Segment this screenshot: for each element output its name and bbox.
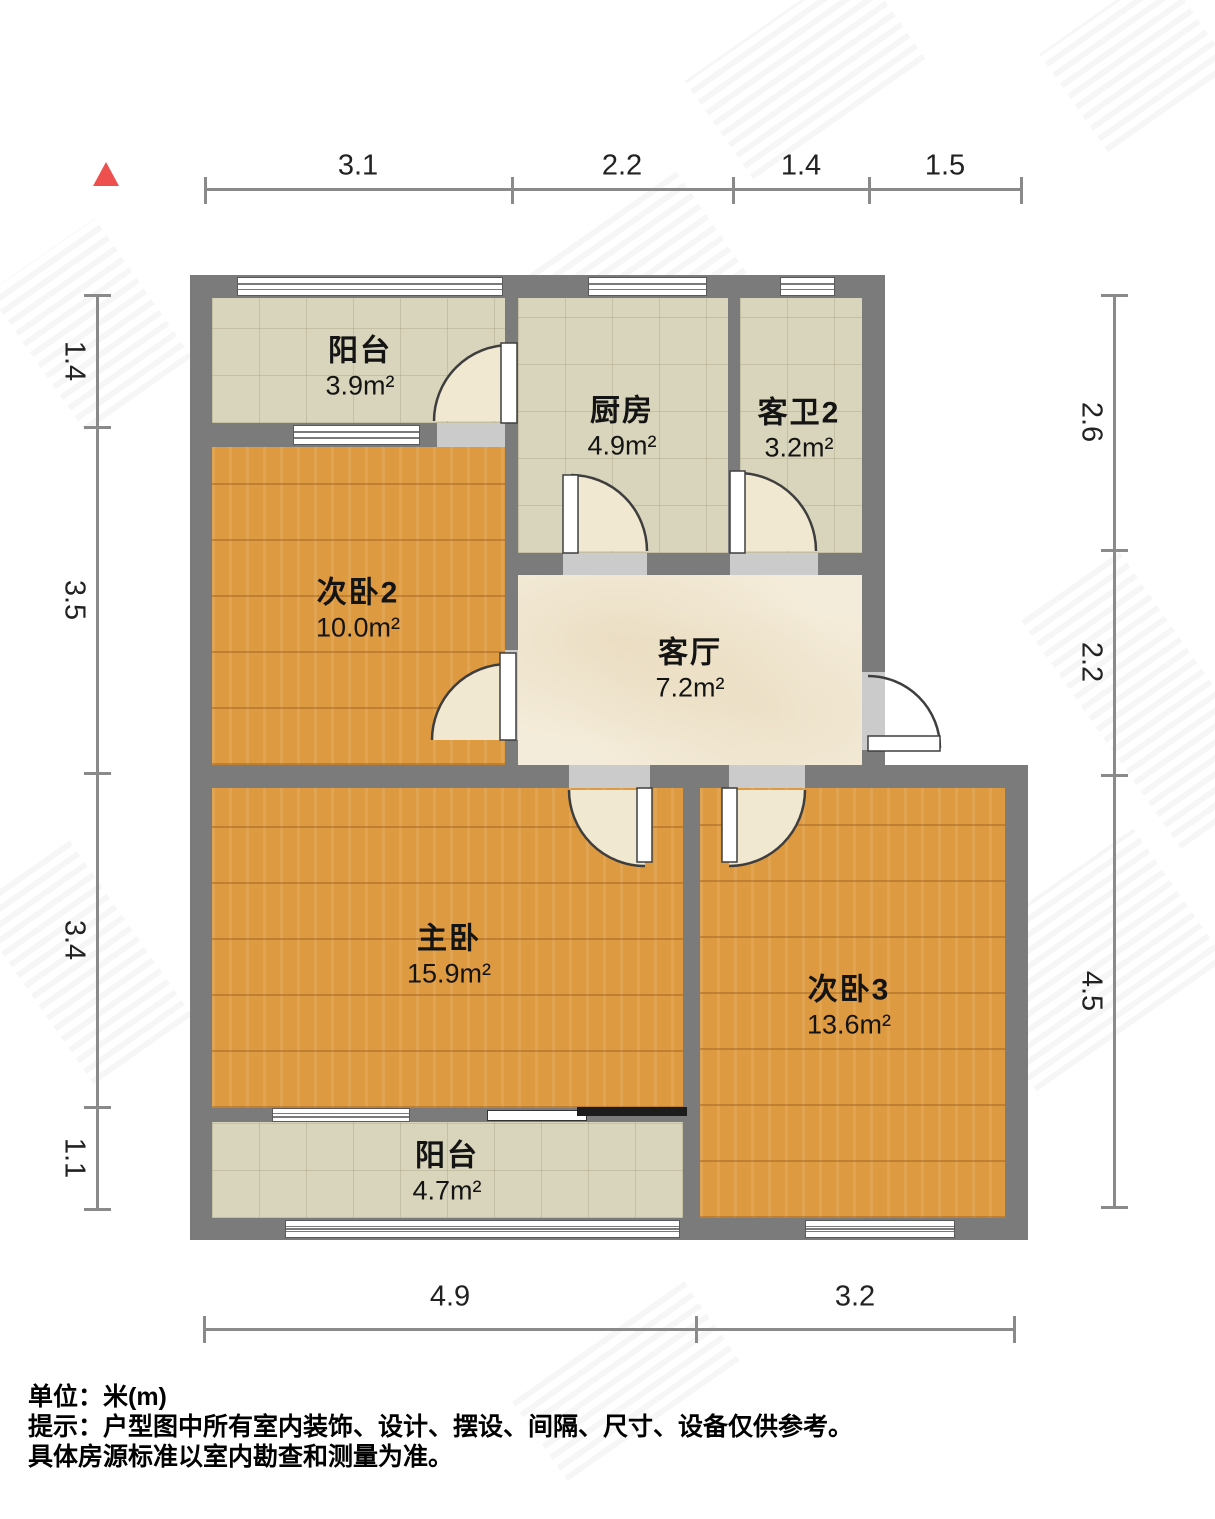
dim-label: 3.5 (58, 580, 91, 620)
wall (728, 298, 740, 553)
dim-label: 1.5 (925, 150, 965, 183)
window (588, 277, 707, 296)
footer-line-tip2: 具体房源标准以室内勘查和测量为准。 (28, 1442, 1128, 1472)
room-label-living: 客厅 7.2m² (655, 636, 724, 705)
window (780, 277, 835, 296)
wall (683, 788, 700, 1218)
window (293, 425, 420, 445)
window (272, 1108, 410, 1122)
dim-label: 1.4 (781, 150, 821, 183)
door-opening (569, 765, 650, 788)
floor-plan: 阳台 3.9m² 厨房 4.9m² 客卫2 3.2m² 次卧2 10.0m² 客… (0, 0, 1215, 1519)
footer-note: 单位：米(m) 提示：户型图中所有室内装饰、设计、摆设、间隔、尺寸、设备仅供参考… (28, 1382, 1128, 1472)
door-opening (729, 765, 805, 788)
footer-line-tip: 提示：户型图中所有室内装饰、设计、摆设、间隔、尺寸、设备仅供参考。 (28, 1412, 1128, 1442)
room-area: 13.6m² (807, 1009, 891, 1042)
wall (1005, 765, 1028, 1240)
room-label-balcony-bottom: 阳台 4.7m² (412, 1139, 481, 1208)
door-opening (437, 423, 505, 447)
dim-label: 3.1 (338, 150, 378, 183)
north-arrow-icon (93, 162, 119, 186)
room-name: 阳台 (412, 1139, 481, 1175)
room-name: 阳台 (325, 334, 394, 370)
room-name: 厨房 (587, 394, 656, 430)
door-opening (505, 650, 518, 740)
dim-label: 1.4 (58, 341, 91, 381)
room-area: 7.2m² (655, 672, 724, 705)
window (805, 1220, 955, 1238)
dim-label: 3.4 (58, 920, 91, 960)
room-area: 10.0m² (316, 612, 400, 645)
room-area: 4.7m² (412, 1175, 481, 1208)
dim-label: 4.9 (430, 1281, 470, 1314)
watermark (1021, 551, 1215, 849)
room-label-master: 主卧 15.9m² (407, 922, 491, 991)
sliding-door (487, 1110, 587, 1121)
door-opening (862, 672, 885, 750)
footer-line-unit: 单位：米(m) (28, 1382, 1128, 1412)
window (237, 277, 503, 296)
room-area: 15.9m² (407, 958, 491, 991)
window (285, 1220, 680, 1238)
room-label-bedroom3: 次卧3 13.6m² (807, 973, 891, 1042)
dim-label: 2.2 (602, 150, 642, 183)
watermark (1039, 0, 1215, 152)
room-label-kitchen: 厨房 4.9m² (587, 394, 656, 463)
room-area: 4.9m² (587, 430, 656, 463)
room-area: 3.2m² (758, 432, 841, 465)
room-name: 主卧 (407, 922, 491, 958)
dim-label: 4.5 (1075, 971, 1108, 1011)
room-label-bedroom2: 次卧2 10.0m² (316, 576, 400, 645)
dim-label: 2.2 (1075, 642, 1108, 682)
dim-label: 1.1 (58, 1138, 91, 1178)
wall (190, 275, 212, 1240)
room-name: 客厅 (655, 636, 724, 672)
dim-label: 2.6 (1075, 402, 1108, 442)
room-name: 客卫2 (758, 396, 841, 432)
room-area: 3.9m² (325, 370, 394, 403)
dim-label: 3.2 (835, 1281, 875, 1314)
room-label-bath2: 客卫2 3.2m² (758, 396, 841, 465)
sliding-door (577, 1107, 687, 1116)
door-opening (563, 553, 647, 575)
door-opening (730, 553, 818, 575)
room-name: 次卧2 (316, 576, 400, 612)
room-label-balcony-top: 阳台 3.9m² (325, 334, 394, 403)
room-name: 次卧3 (807, 973, 891, 1009)
